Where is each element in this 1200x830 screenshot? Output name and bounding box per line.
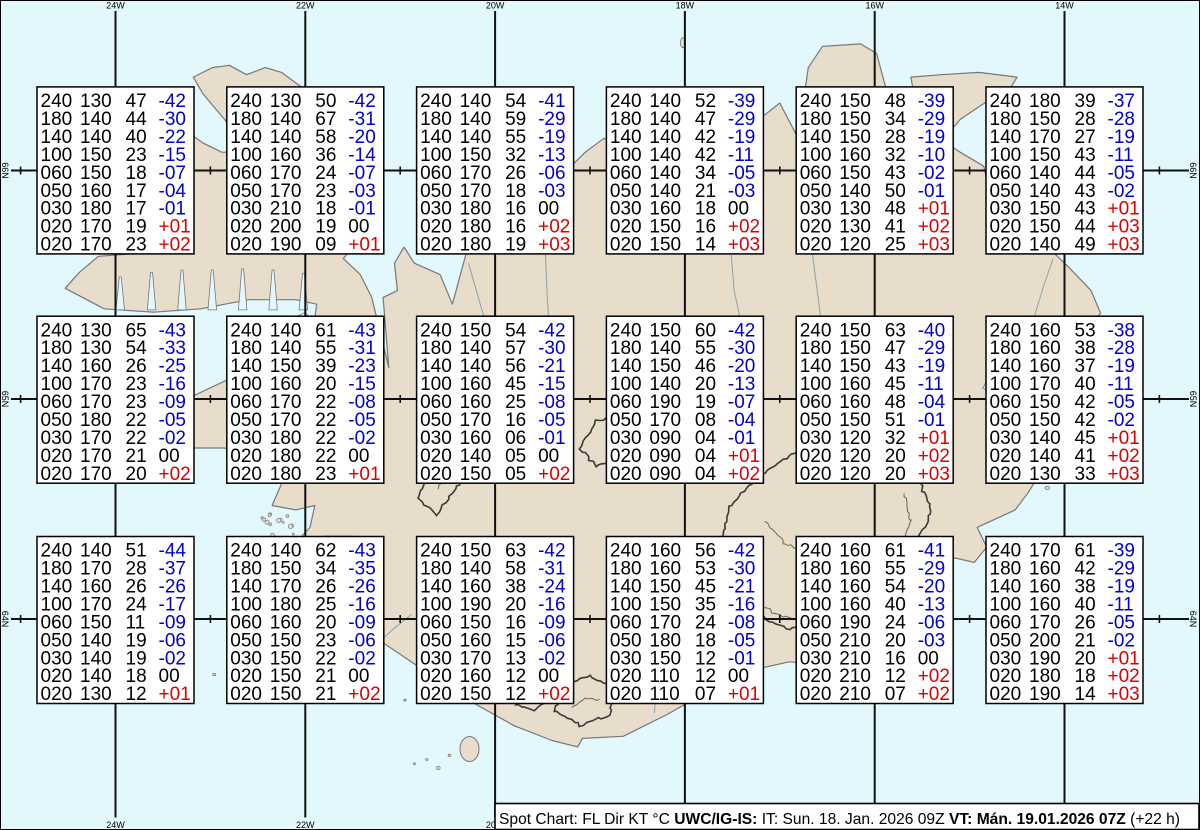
svg-text:140: 140 [1029, 235, 1061, 256]
svg-text:+02: +02 [159, 235, 191, 256]
svg-text:170: 170 [80, 464, 112, 485]
svg-text:+01: +01 [159, 684, 191, 705]
svg-text:020: 020 [420, 235, 452, 256]
svg-text:+02: +02 [918, 684, 950, 705]
svg-text:180: 180 [460, 235, 492, 256]
svg-text:020: 020 [990, 235, 1022, 256]
svg-text:+03: +03 [918, 464, 950, 485]
svg-text:+03: +03 [918, 235, 950, 256]
svg-text:210: 210 [839, 684, 871, 705]
svg-text:+01: +01 [348, 464, 380, 485]
svg-text:020: 020 [610, 684, 642, 705]
svg-text:+03: +03 [1108, 684, 1140, 705]
svg-text:020: 020 [990, 684, 1022, 705]
svg-text:190: 190 [1029, 684, 1061, 705]
svg-text:23: 23 [315, 464, 336, 485]
svg-text:66N: 66N [1188, 162, 1198, 179]
svg-text:020: 020 [800, 684, 832, 705]
svg-text:150: 150 [270, 684, 302, 705]
svg-text:14: 14 [695, 235, 717, 256]
svg-text:20: 20 [126, 464, 147, 485]
svg-text:+02: +02 [348, 684, 380, 705]
svg-text:66N: 66N [0, 162, 10, 179]
svg-text:09: 09 [315, 235, 336, 256]
svg-text:+02: +02 [538, 684, 570, 705]
svg-text:020: 020 [420, 464, 452, 485]
svg-text:22W: 22W [296, 820, 315, 830]
svg-text:25: 25 [885, 235, 906, 256]
svg-text:05: 05 [505, 464, 526, 485]
svg-text:64N: 64N [0, 611, 10, 628]
svg-text:21: 21 [315, 684, 336, 705]
svg-text:130: 130 [80, 684, 112, 705]
svg-text:020: 020 [41, 684, 73, 705]
svg-text:150: 150 [649, 235, 681, 256]
svg-text:+03: +03 [728, 235, 760, 256]
svg-text:020: 020 [800, 464, 832, 485]
svg-text:07: 07 [885, 684, 906, 705]
svg-text:24W: 24W [106, 1, 125, 11]
svg-text:170: 170 [80, 235, 112, 256]
svg-text:150: 150 [460, 684, 492, 705]
svg-text:19: 19 [505, 235, 526, 256]
svg-text:120: 120 [839, 464, 871, 485]
svg-text:180: 180 [270, 464, 302, 485]
svg-text:020: 020 [41, 464, 73, 485]
svg-text:+01: +01 [728, 684, 760, 705]
svg-text:14W: 14W [1055, 1, 1074, 11]
svg-text:020: 020 [230, 235, 262, 256]
svg-text:12: 12 [126, 684, 147, 705]
svg-text:+03: +03 [538, 235, 570, 256]
svg-text:24W: 24W [106, 820, 125, 830]
svg-text:020: 020 [610, 464, 642, 485]
svg-text:23: 23 [126, 235, 147, 256]
svg-text:12: 12 [505, 684, 526, 705]
svg-text:49: 49 [1075, 235, 1096, 256]
svg-text:020: 020 [230, 464, 262, 485]
svg-text:+03: +03 [1108, 235, 1140, 256]
svg-text:20: 20 [885, 464, 906, 485]
svg-text:110: 110 [649, 684, 679, 705]
svg-text:07: 07 [695, 684, 716, 705]
svg-text:150: 150 [460, 464, 492, 485]
svg-text:22W: 22W [296, 1, 315, 11]
svg-text:65N: 65N [1188, 391, 1198, 408]
svg-text:020: 020 [800, 235, 832, 256]
svg-text:16W: 16W [865, 1, 884, 11]
svg-text:020: 020 [420, 684, 452, 705]
svg-text:120: 120 [839, 235, 871, 256]
svg-text:020: 020 [610, 235, 642, 256]
svg-text:020: 020 [990, 464, 1022, 485]
svg-text:+02: +02 [159, 464, 191, 485]
svg-text:+01: +01 [348, 235, 380, 256]
svg-text:33: 33 [1075, 464, 1096, 485]
svg-text:65N: 65N [0, 391, 10, 408]
svg-text:090: 090 [649, 464, 681, 485]
svg-text:18W: 18W [676, 1, 695, 11]
svg-text:Spot Chart: FL Dir KT °C UWC/I: Spot Chart: FL Dir KT °C UWC/IG-IS: IT: … [499, 811, 1180, 828]
svg-text:64N: 64N [1188, 611, 1198, 628]
svg-text:+02: +02 [538, 464, 570, 485]
svg-text:190: 190 [270, 235, 302, 256]
svg-text:20W: 20W [486, 1, 505, 11]
svg-text:130: 130 [1029, 464, 1061, 485]
svg-text:+03: +03 [1108, 464, 1140, 485]
svg-text:04: 04 [695, 464, 717, 485]
svg-text:020: 020 [230, 684, 262, 705]
svg-text:020: 020 [41, 235, 73, 256]
svg-text:+02: +02 [728, 464, 760, 485]
svg-text:14: 14 [1075, 684, 1097, 705]
